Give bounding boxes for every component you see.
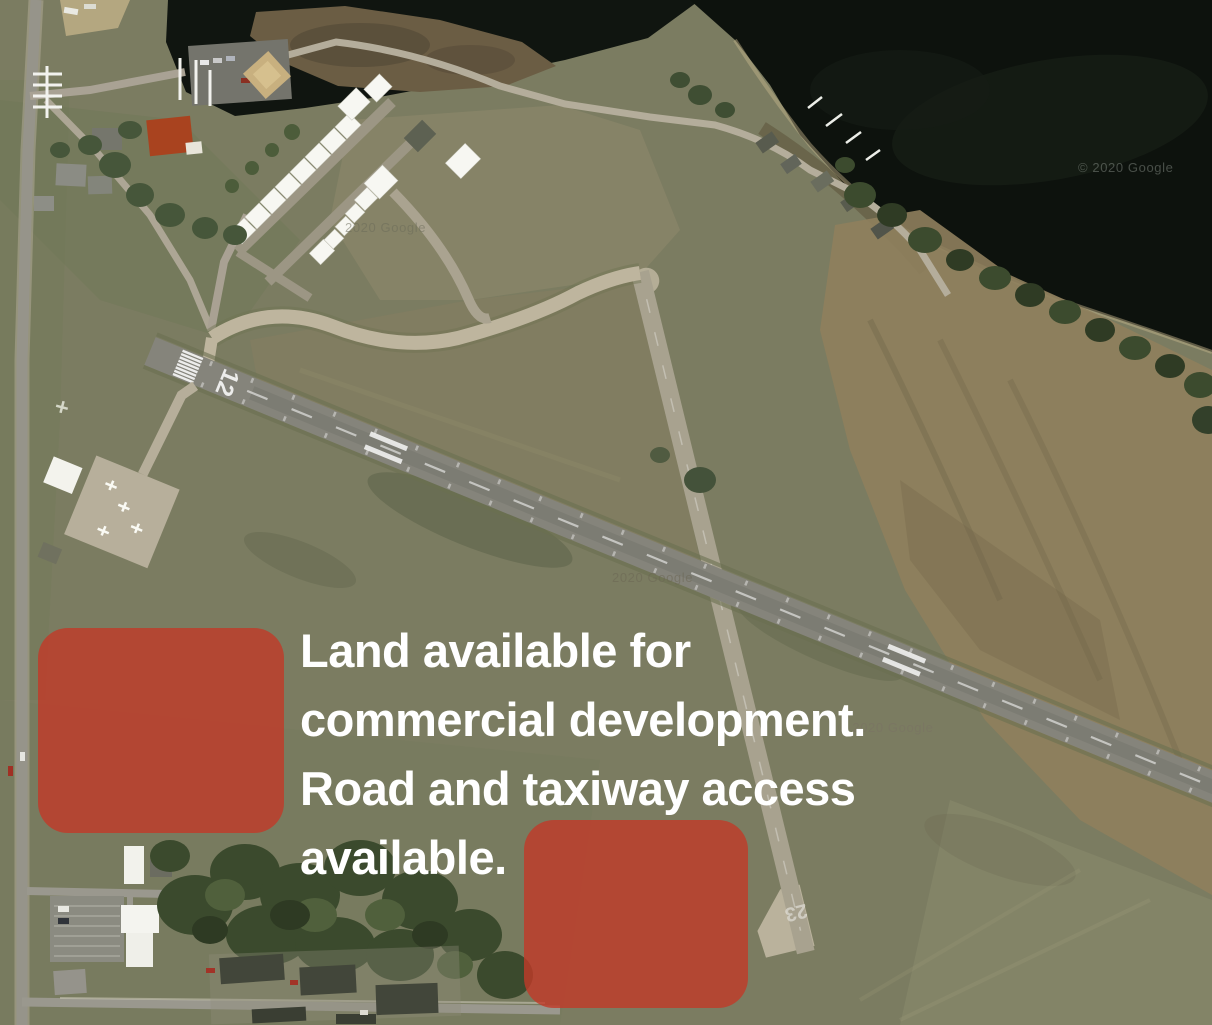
watermark: 2020 Google — [612, 570, 693, 585]
satellite-map: 23 12 — [0, 0, 1212, 1025]
annotation-line-2: commercial development. — [300, 685, 940, 754]
gray-roof-house — [53, 969, 87, 995]
annotation-text: Land available for commercial developmen… — [300, 616, 940, 892]
aircraft-apron — [64, 455, 180, 568]
small-white-building — [124, 846, 144, 884]
annotation-line-3: Road and taxiway access — [300, 754, 940, 823]
white-building — [121, 905, 159, 933]
available-parcel-west — [38, 628, 284, 833]
annotation-line-1: Land available for — [300, 616, 940, 685]
annotation-line-4: available. — [300, 823, 940, 892]
apartment-buildings — [206, 946, 461, 1025]
watermark: © 2020 Google — [1078, 160, 1173, 175]
south-access-road — [27, 891, 168, 894]
watermark: 2020 Google — [345, 220, 426, 235]
